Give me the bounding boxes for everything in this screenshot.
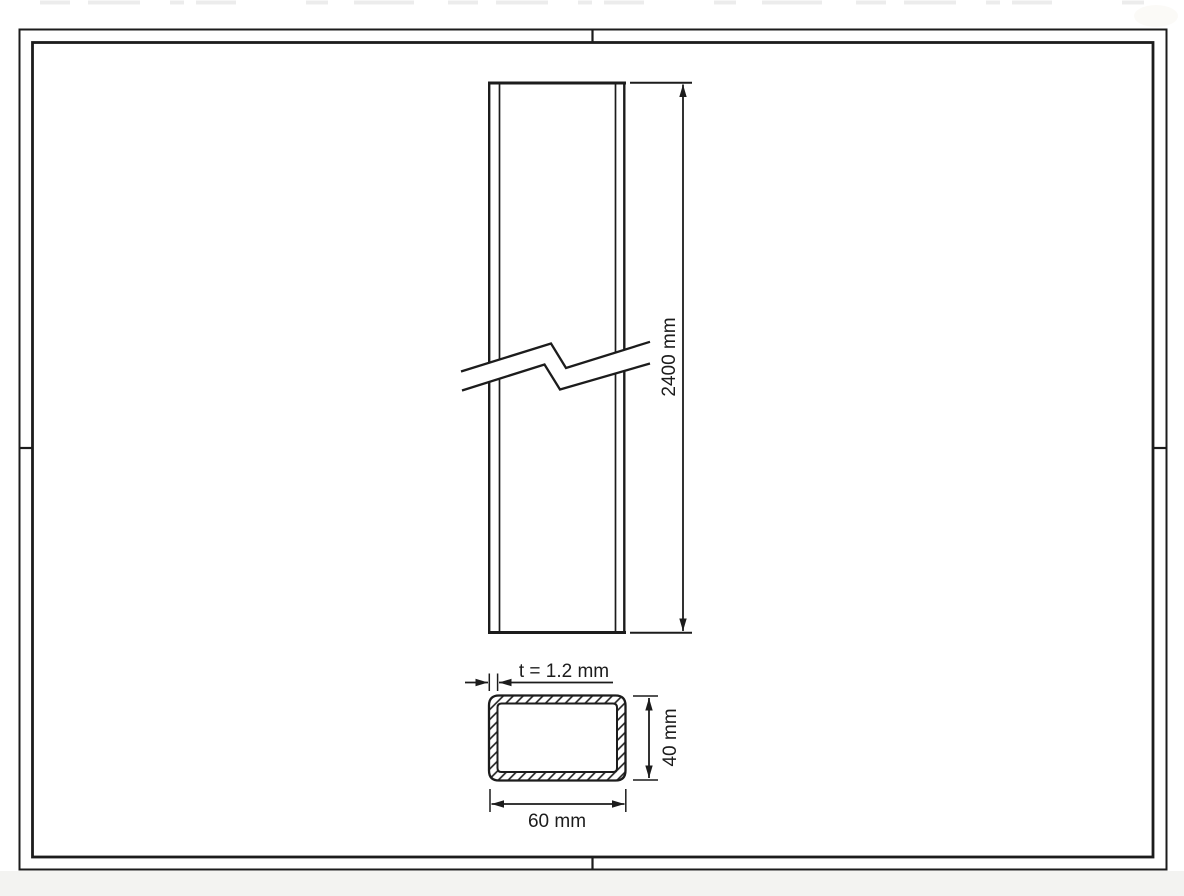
section-width-label: 60 mm — [528, 811, 586, 832]
technical-drawing-canvas: 2400 mm t = 1.2 mm 40 mm 60 mm — [0, 0, 1184, 896]
paper-background — [0, 0, 1184, 896]
thickness-dimension-label: t = 1.2 mm — [519, 661, 609, 682]
drawing-sheet: 2400 mm t = 1.2 mm 40 mm 60 mm — [0, 0, 1184, 896]
faint-stain — [1134, 5, 1178, 27]
bottom-margin-strip — [0, 871, 1184, 896]
section-height-label: 40 mm — [660, 708, 681, 766]
length-dimension-label: 2400 mm — [659, 317, 680, 396]
